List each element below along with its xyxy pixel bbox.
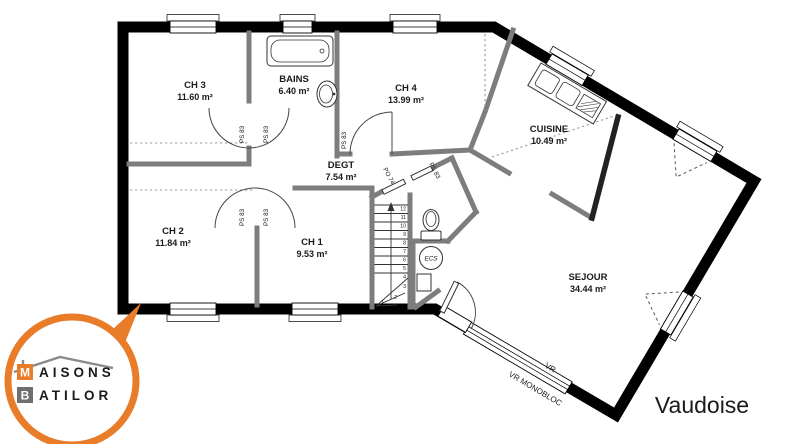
- door-label: PS 83: [341, 131, 348, 149]
- brand-batilor: ATILOR: [39, 388, 112, 403]
- floor-plan: 12 11 10 9 8 7 6 5 4 3 2 1 ECS: [0, 0, 800, 444]
- door-label: PS 83: [263, 208, 270, 226]
- room-name: SEJOUR: [568, 272, 607, 283]
- room-name: CH 4: [395, 83, 417, 94]
- logo-b-letter: B: [21, 389, 30, 403]
- room-area: 34.44 m²: [570, 284, 606, 294]
- step-number: 7: [403, 249, 406, 255]
- logo-circle: [8, 317, 136, 444]
- room-name: CH 3: [184, 80, 206, 91]
- room-name: CUISINE: [530, 124, 569, 135]
- water-heater-label: ECS: [425, 256, 439, 263]
- step-number: 10: [400, 224, 406, 230]
- washbasin-icon: [317, 81, 337, 107]
- window: [167, 303, 219, 322]
- logo-m-letter: M: [20, 366, 30, 380]
- toilet-icon: [421, 210, 441, 241]
- room-name: CH 1: [301, 237, 323, 248]
- floor-plan-page: 12 11 10 9 8 7 6 5 4 3 2 1 ECS: [0, 0, 800, 444]
- step-number: 2: [394, 295, 397, 301]
- room-area: 11.60 m²: [177, 92, 213, 102]
- step-number: 12: [400, 207, 406, 213]
- window: [280, 15, 315, 34]
- window: [289, 303, 341, 322]
- step-number: 9: [403, 232, 406, 238]
- window: [167, 15, 219, 34]
- room-area: 7.54 m²: [325, 172, 356, 182]
- step-number: 5: [403, 266, 406, 272]
- room-area: 10.49 m²: [531, 136, 567, 146]
- door-label: PS 83: [239, 208, 246, 226]
- step-number: 8: [403, 241, 406, 247]
- brand-logo: M AISONS B ATILOR: [8, 303, 141, 444]
- model-name: Vaudoise: [655, 392, 749, 418]
- room-name: CH 2: [162, 226, 184, 237]
- room-name: BAINS: [279, 74, 309, 85]
- step-number: 3: [403, 284, 406, 290]
- room-area: 13.99 m²: [388, 95, 424, 105]
- bathtub-icon: [267, 36, 333, 66]
- door-label: PS 83: [239, 125, 246, 143]
- brand-maisons: AISONS: [39, 365, 115, 380]
- step-number: 6: [403, 258, 406, 264]
- room-area: 6.40 m²: [278, 86, 309, 96]
- window: [390, 15, 440, 34]
- room-area: 9.53 m²: [296, 249, 327, 259]
- step-number: 1: [381, 300, 384, 306]
- step-number: 11: [401, 215, 406, 221]
- room-area: 11.84 m²: [155, 238, 191, 248]
- door-label: PS 83: [263, 125, 270, 143]
- step-number: 4: [403, 275, 406, 281]
- room-name: DEGT: [328, 160, 355, 171]
